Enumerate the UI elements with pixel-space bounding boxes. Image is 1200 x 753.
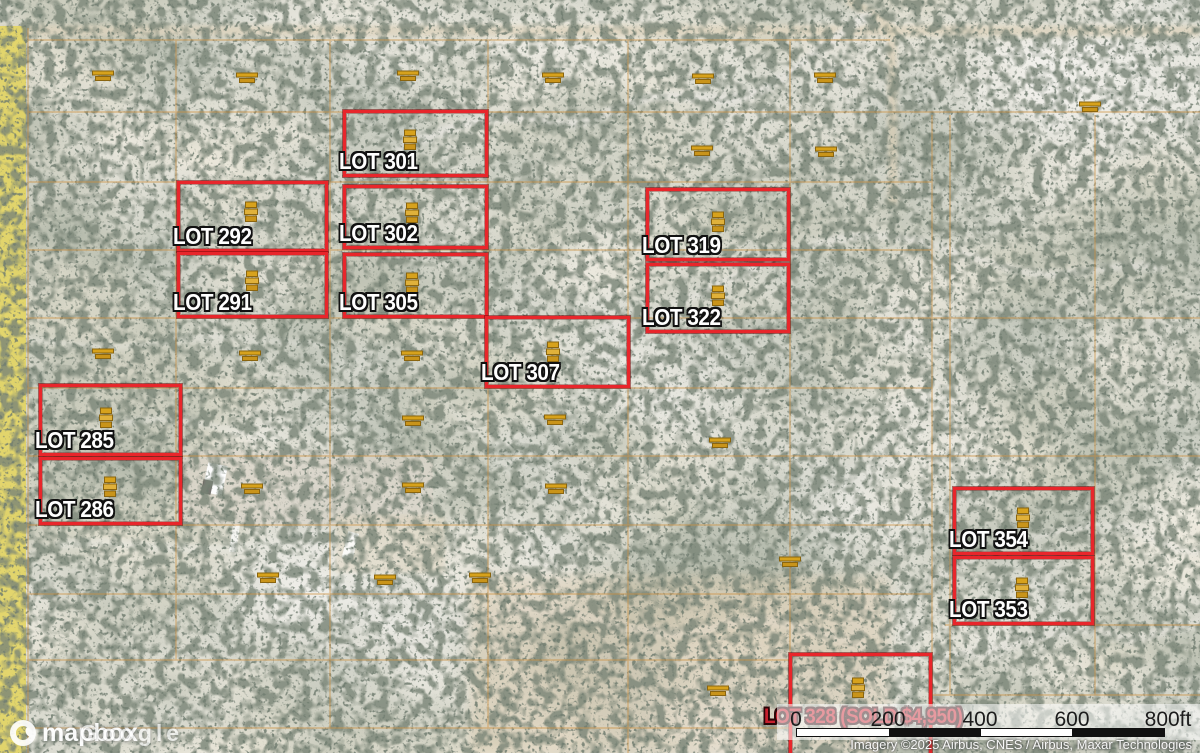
scale-bar-segments <box>796 728 1165 737</box>
lot-label: LOT 319 <box>642 234 721 257</box>
lot-boundary-319[interactable]: LOT 319 <box>646 188 790 261</box>
lot-boundary-302[interactable]: LOT 302 <box>343 185 488 249</box>
lot-label: LOT 305 <box>339 291 418 314</box>
lot-label: LOT 292 <box>173 225 252 248</box>
lot-boundary-354[interactable]: LOT 354 <box>953 487 1094 555</box>
lot-boundary-305[interactable]: LOT 305 <box>343 253 488 318</box>
google-logo[interactable]: Google <box>80 720 183 747</box>
lot-label: LOT 353 <box>949 598 1028 621</box>
lot-boundary-292[interactable]: LOT 292 <box>177 181 328 252</box>
lot-overlays-layer: LOT 301LOT 292LOT 302LOT 291LOT 305LOT 3… <box>0 0 1200 753</box>
scale-bar: 0 200 400 600 800ft Imagery ©2025 Airbus… <box>777 704 1200 740</box>
lot-boundary-353[interactable]: LOT 353 <box>953 556 1094 625</box>
lot-label: LOT 285 <box>35 429 114 452</box>
lot-boundary-286[interactable]: LOT 286 <box>39 457 182 525</box>
lot-label: LOT 291 <box>173 291 252 314</box>
lot-boundary-322[interactable]: LOT 322 <box>646 263 790 333</box>
lot-label: LOT 307 <box>481 361 560 384</box>
lot-label: LOT 302 <box>339 222 418 245</box>
imagery-attribution: Imagery ©2025 Airbus, CNES / Airbus, Max… <box>777 737 1192 752</box>
map-canvas[interactable]: LOT 301LOT 292LOT 302LOT 291LOT 305LOT 3… <box>0 0 1200 753</box>
lot-boundary-285[interactable]: LOT 285 <box>39 384 182 456</box>
lot-boundary-291[interactable]: LOT 291 <box>177 252 328 318</box>
lot-label: LOT 322 <box>642 306 721 329</box>
mapbox-logo-icon[interactable] <box>10 720 36 746</box>
lot-label: LOT 286 <box>35 498 114 521</box>
lot-boundary-307[interactable]: LOT 307 <box>485 316 630 388</box>
lot-label: LOT 301 <box>339 150 418 173</box>
lot-label: LOT 354 <box>949 528 1028 551</box>
lot-boundary-301[interactable]: LOT 301 <box>343 110 488 177</box>
